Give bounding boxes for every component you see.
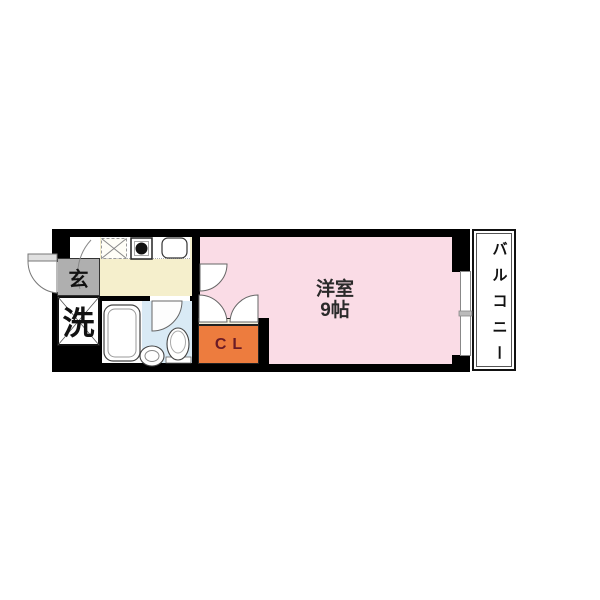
bathroom-door-opening — [150, 296, 190, 301]
floor-plan-page: 玄 洗 CL 洋室 9帖 バ ル コ ニ ー — [0, 0, 600, 600]
balcony-char: ニ — [492, 316, 507, 337]
main-room-name: 洋室 — [316, 279, 354, 300]
bottom-right-pillar — [452, 355, 470, 365]
bathroom-floor — [142, 301, 192, 363]
balcony-char: コ — [492, 290, 507, 311]
balcony-label: バ ル コ ニ ー — [474, 231, 516, 369]
kitchen-counter — [101, 237, 190, 259]
entrance-label: 玄 — [57, 258, 100, 296]
top-right-pillar — [452, 237, 470, 272]
balcony-window-icon — [460, 271, 471, 356]
main-room-size: 9帖 — [320, 300, 350, 321]
balcony-char: バ — [492, 238, 507, 259]
closet-label: CL — [198, 325, 259, 364]
balcony-char: ル — [492, 264, 507, 285]
laundry-label: 洗 — [57, 296, 100, 346]
main-room-label: 洋室 9帖 — [250, 278, 420, 322]
balcony-char: ー — [489, 344, 510, 359]
entrance-alcove — [70, 237, 100, 258]
closet-side-wall — [259, 318, 269, 364]
